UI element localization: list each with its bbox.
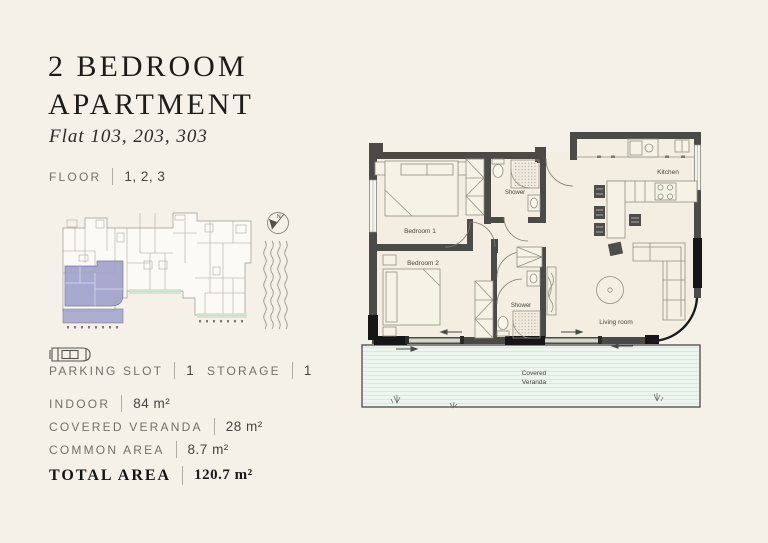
parking-storage-row: PARKING SLOT 1 STORAGE 1 (49, 362, 349, 382)
shower-bottom-label: Shower (511, 303, 531, 309)
flat-numbers: Flat 103, 203, 303 (49, 126, 208, 148)
covered-veranda-area: Covered Veranda (362, 345, 700, 408)
waves-icon (264, 241, 288, 329)
common-area-value: 8.7 m² (188, 442, 229, 457)
bedroom1-furniture (375, 159, 484, 216)
site-highlighted-unit (63, 261, 123, 323)
svg-text:N: N (277, 214, 281, 220)
page-title-line2: APARTMENT (48, 86, 254, 124)
indoor-value: 84 m² (133, 396, 170, 411)
covered-veranda-label: COVERED VERANDA (49, 420, 203, 434)
parking-label: PARKING SLOT (49, 364, 163, 378)
storage-value: 1 (304, 363, 312, 378)
floorplan-sheet: { "header": { "title_line1": "2 BEDROOM"… (0, 0, 768, 543)
total-area-value: 120.7 m² (194, 467, 253, 484)
page-title: 2 BEDROOM APARTMENT (48, 48, 254, 124)
page-title-line1: 2 BEDROOM (48, 48, 254, 86)
veranda-label-line1: Covered (522, 370, 547, 377)
floor-value: 1, 2, 3 (124, 169, 165, 184)
divider (176, 441, 177, 458)
divider (292, 362, 293, 379)
site-green-strip (129, 289, 181, 294)
storage-label: STORAGE (207, 364, 281, 378)
site-green-strip-2 (197, 313, 247, 318)
veranda-label-line2: Veranda (522, 379, 547, 386)
living-room-label: Living room (599, 319, 633, 326)
bedroom1-label: Bedroom 1 (404, 228, 436, 235)
floor-label: FLOOR (49, 170, 101, 184)
site-plan: N (55, 203, 297, 343)
covered-veranda-row: COVERED VERANDA 28 m² (49, 418, 263, 435)
apartment-floorplan: Covered Veranda (345, 95, 765, 425)
total-area-row: TOTAL AREA 120.7 m² (49, 466, 253, 485)
divider (182, 466, 183, 485)
divider (112, 168, 113, 185)
covered-veranda-value: 28 m² (226, 419, 263, 434)
storage-group: STORAGE 1 (207, 362, 312, 379)
indoor-row: INDOOR 84 m² (49, 395, 170, 412)
kitchen-label: Kitchen (657, 169, 679, 176)
compass-icon: N (268, 213, 289, 234)
divider (214, 418, 215, 435)
indoor-label: INDOOR (49, 397, 110, 411)
floor-row: FLOOR 1, 2, 3 (49, 168, 165, 185)
common-area-label: COMMON AREA (49, 443, 165, 457)
divider (174, 362, 175, 379)
bedroom2-label: Bedroom 2 (407, 260, 439, 267)
parking-value: 1 (186, 363, 194, 378)
divider (121, 395, 122, 412)
total-area-label: TOTAL AREA (49, 467, 171, 485)
common-area-row: COMMON AREA 8.7 m² (49, 441, 229, 458)
shower-top-label: Shower (505, 190, 525, 196)
